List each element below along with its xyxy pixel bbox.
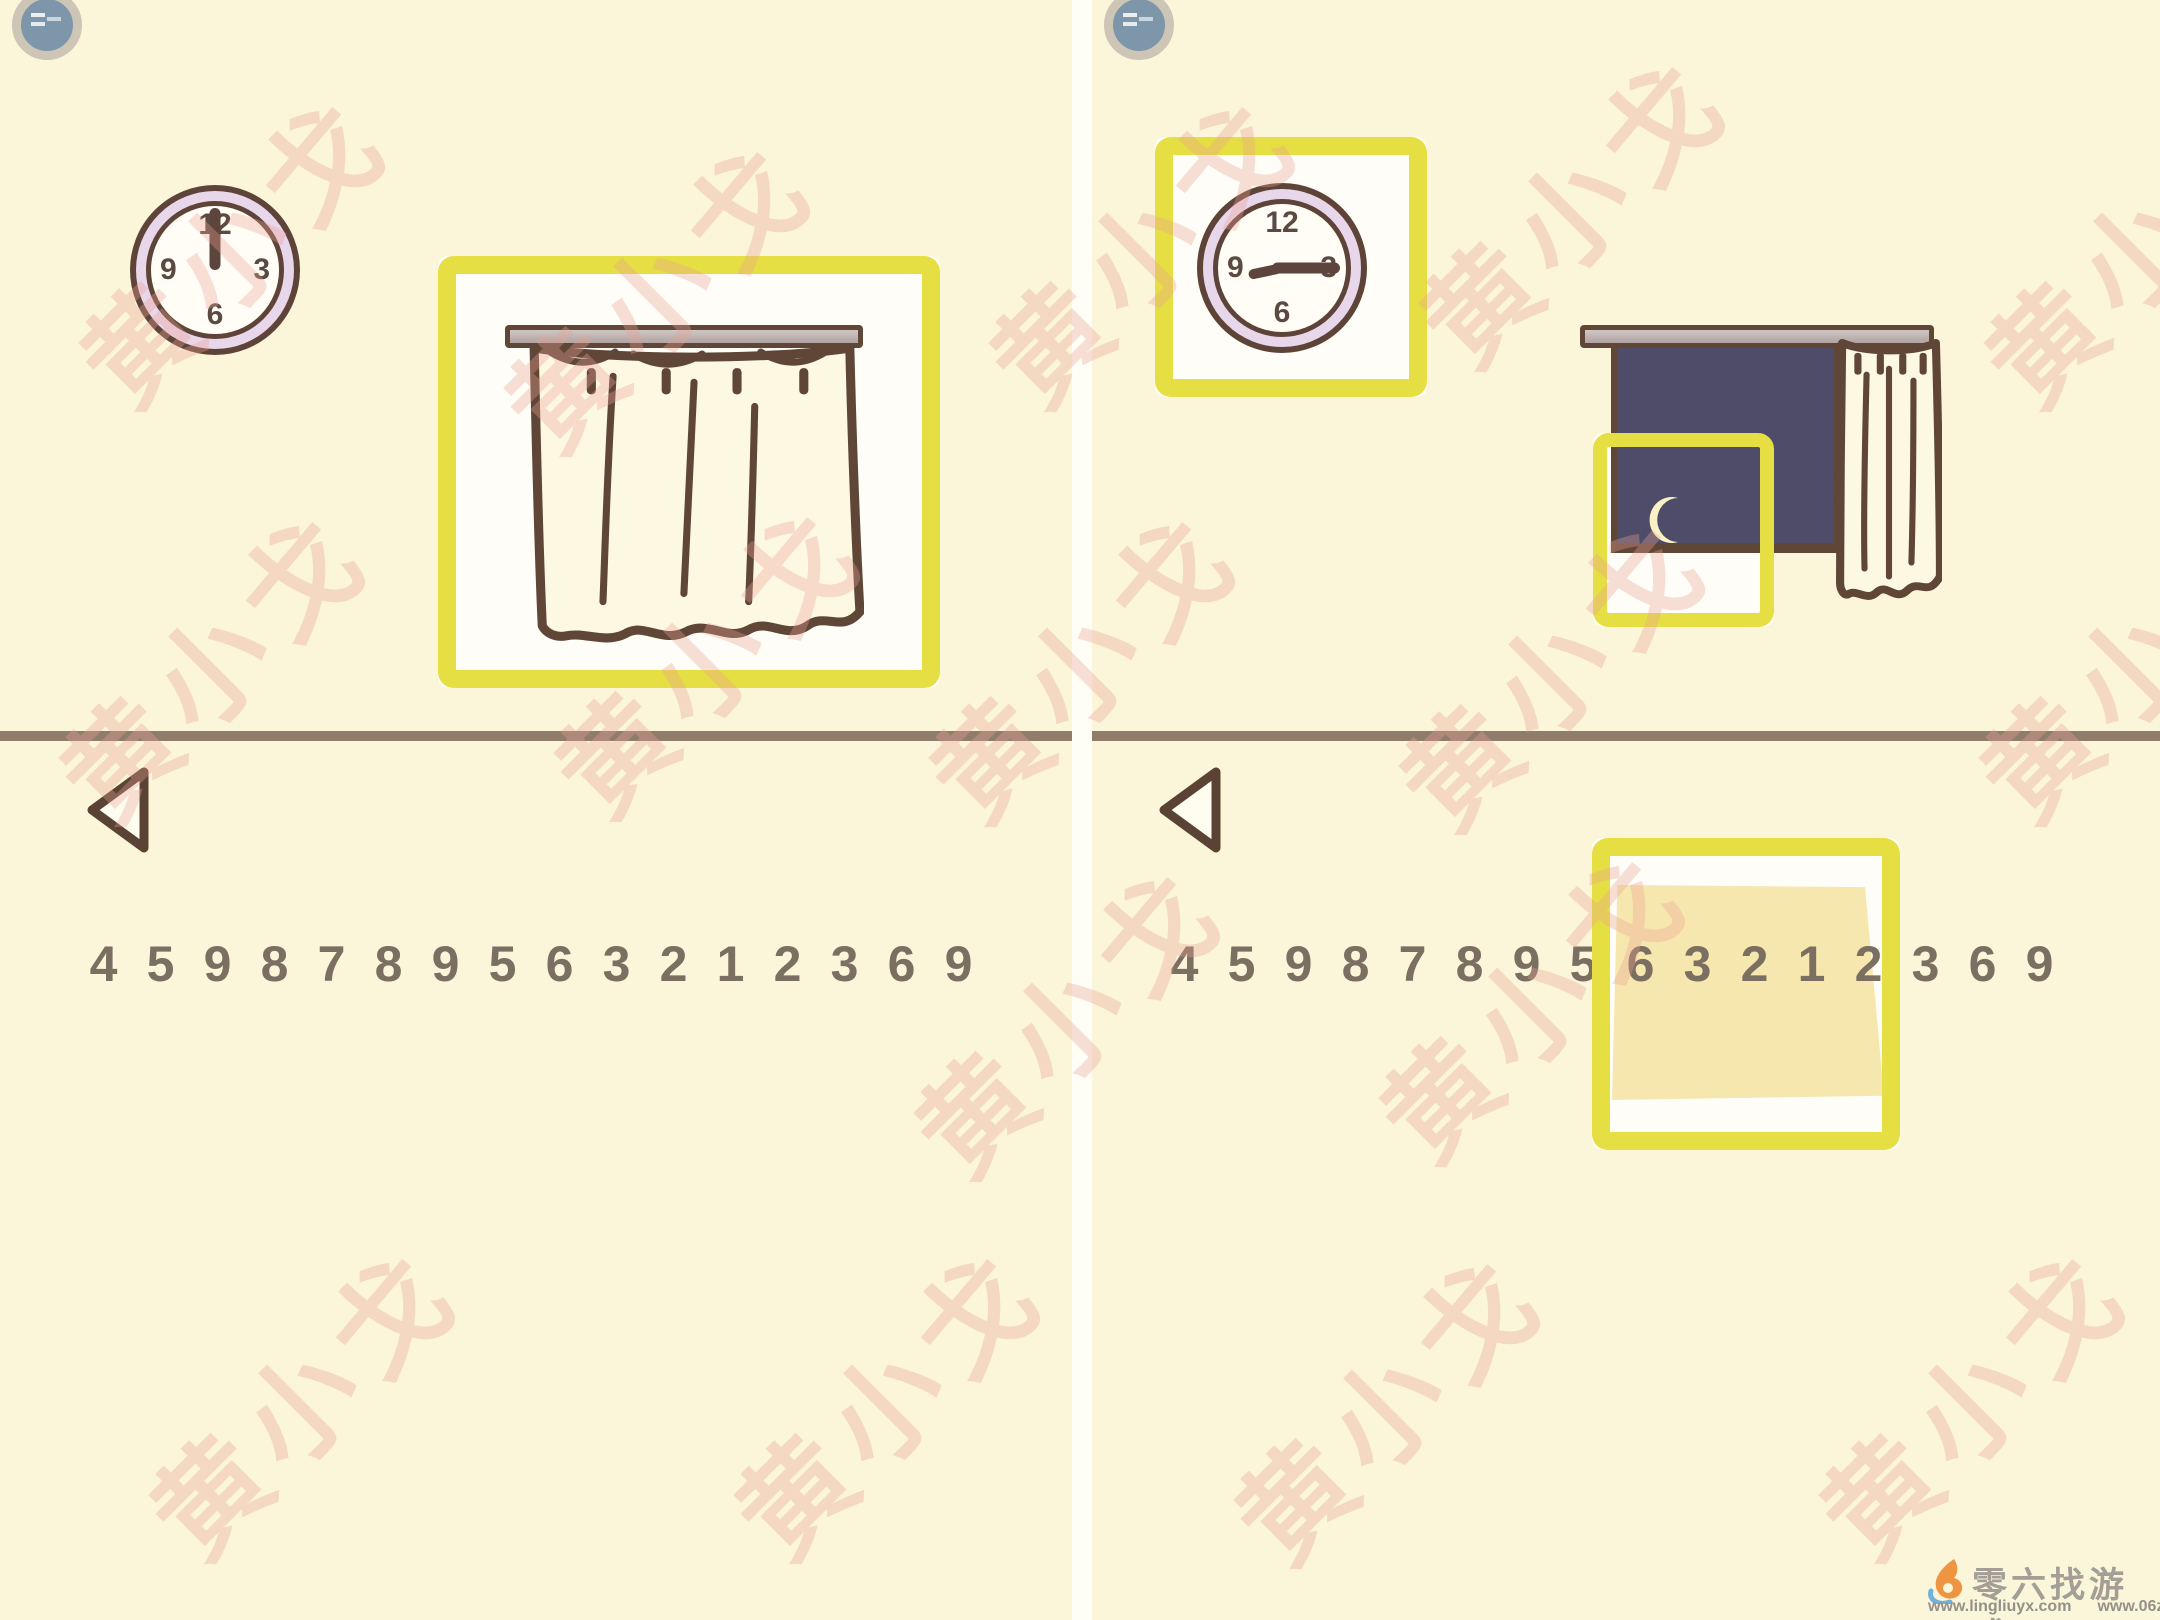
- back-button[interactable]: [84, 766, 154, 854]
- back-button[interactable]: [1156, 766, 1226, 854]
- clock-hands-12oclock: [210, 208, 221, 270]
- brand-urls: www.lingliuyx.comwww.06zyx.com: [1928, 1598, 2160, 1616]
- brand-url: www.06zyx.com: [2097, 1598, 2160, 1615]
- badge-glyphs: [1123, 13, 1137, 17]
- watermark-text: 黄小戈: [1944, 54, 2160, 436]
- badge-glyphs: [31, 13, 45, 17]
- clock-numeral-9: 9: [160, 255, 177, 285]
- digit[interactable]: 9: [1270, 936, 1327, 992]
- brand-url: www.lingliuyx.com: [1928, 1598, 2071, 1615]
- clock-numeral-6: 6: [207, 300, 224, 330]
- watermark-text: 黄小戈: [109, 1206, 491, 1588]
- watermark-text: 黄小戈: [874, 824, 1256, 1206]
- digit[interactable]: 3: [1897, 936, 1954, 992]
- digit[interactable]: 8: [1327, 936, 1384, 992]
- highlight-box-moon: [1593, 433, 1774, 627]
- digit[interactable]: 9: [189, 936, 246, 992]
- highlight-box-clock: [1155, 137, 1427, 397]
- digit[interactable]: 6: [873, 936, 930, 992]
- watermark-text: 黄小戈: [1939, 469, 2160, 851]
- watermark-text: 黄小戈: [1779, 1206, 2160, 1588]
- digit[interactable]: 1: [702, 936, 759, 992]
- digit[interactable]: 3: [816, 936, 873, 992]
- wall-floor-divider: [1092, 731, 2160, 741]
- digit[interactable]: 7: [303, 936, 360, 992]
- digit[interactable]: 5: [1213, 936, 1270, 992]
- digit[interactable]: 4: [75, 936, 132, 992]
- digit[interactable]: 2: [759, 936, 816, 992]
- walkthrough-screenshot: 12 3 6 9 4598789563212369 12 3 6 9: [0, 0, 2160, 1620]
- digit[interactable]: 8: [1441, 936, 1498, 992]
- clock-numeral-3: 3: [253, 255, 270, 285]
- watermark-text: 黄小戈: [1194, 1211, 1576, 1593]
- clock-face: 12 3 6 9: [146, 201, 284, 339]
- digit[interactable]: 9: [1498, 936, 1555, 992]
- digit[interactable]: 3: [588, 936, 645, 992]
- open-curtain[interactable]: [1836, 339, 1942, 621]
- digit[interactable]: 6: [1954, 936, 2011, 992]
- watermark-text: 黄小戈: [694, 1206, 1076, 1588]
- digit[interactable]: 5: [132, 936, 189, 992]
- highlight-box-curtain: [438, 256, 940, 688]
- digit[interactable]: 9: [930, 936, 987, 992]
- highlight-box-note: [1592, 838, 1900, 1150]
- digit[interactable]: 2: [645, 936, 702, 992]
- corner-badge-icon[interactable]: [1104, 0, 1174, 60]
- digit[interactable]: 4: [1156, 936, 1213, 992]
- panel-seam: [1072, 0, 1092, 1620]
- digit[interactable]: 5: [474, 936, 531, 992]
- digit[interactable]: 9: [2011, 936, 2068, 992]
- digit[interactable]: 6: [531, 936, 588, 992]
- wall-floor-divider: [0, 731, 1072, 741]
- digit[interactable]: 8: [246, 936, 303, 992]
- watermark-text: 黄小戈: [19, 469, 401, 851]
- digit[interactable]: 7: [1384, 936, 1441, 992]
- wall-clock-left[interactable]: 12 3 6 9: [130, 185, 300, 355]
- digit-row[interactable]: 4598789563212369: [75, 936, 987, 992]
- corner-badge-icon[interactable]: [12, 0, 82, 60]
- digit[interactable]: 9: [417, 936, 474, 992]
- digit[interactable]: 8: [360, 936, 417, 992]
